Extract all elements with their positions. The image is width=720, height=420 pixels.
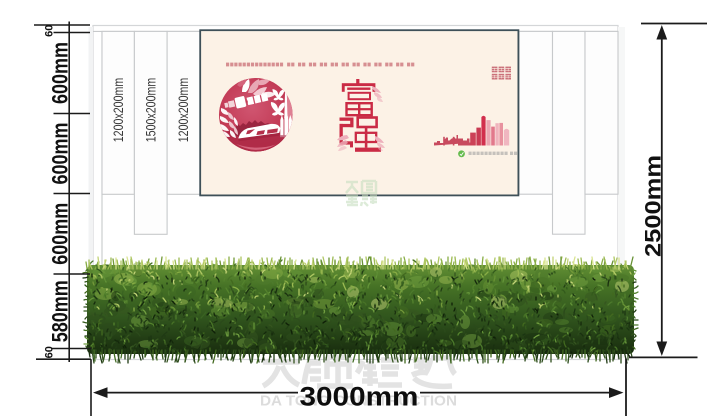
svg-text:60: 60 <box>43 346 55 358</box>
svg-text:600mm: 600mm <box>47 203 72 265</box>
svg-text:3000mm: 3000mm <box>300 382 419 412</box>
svg-text:600mm: 600mm <box>47 42 72 104</box>
svg-text:1500x200mm: 1500x200mm <box>142 78 158 143</box>
svg-text:1200x200mm: 1200x200mm <box>175 78 191 143</box>
svg-text:580mm: 580mm <box>47 280 72 342</box>
svg-text:600mm: 600mm <box>47 123 72 185</box>
svg-text:1200x200mm: 1200x200mm <box>110 78 126 143</box>
svg-text:60: 60 <box>43 25 55 37</box>
svg-text:2500mm: 2500mm <box>640 155 665 257</box>
